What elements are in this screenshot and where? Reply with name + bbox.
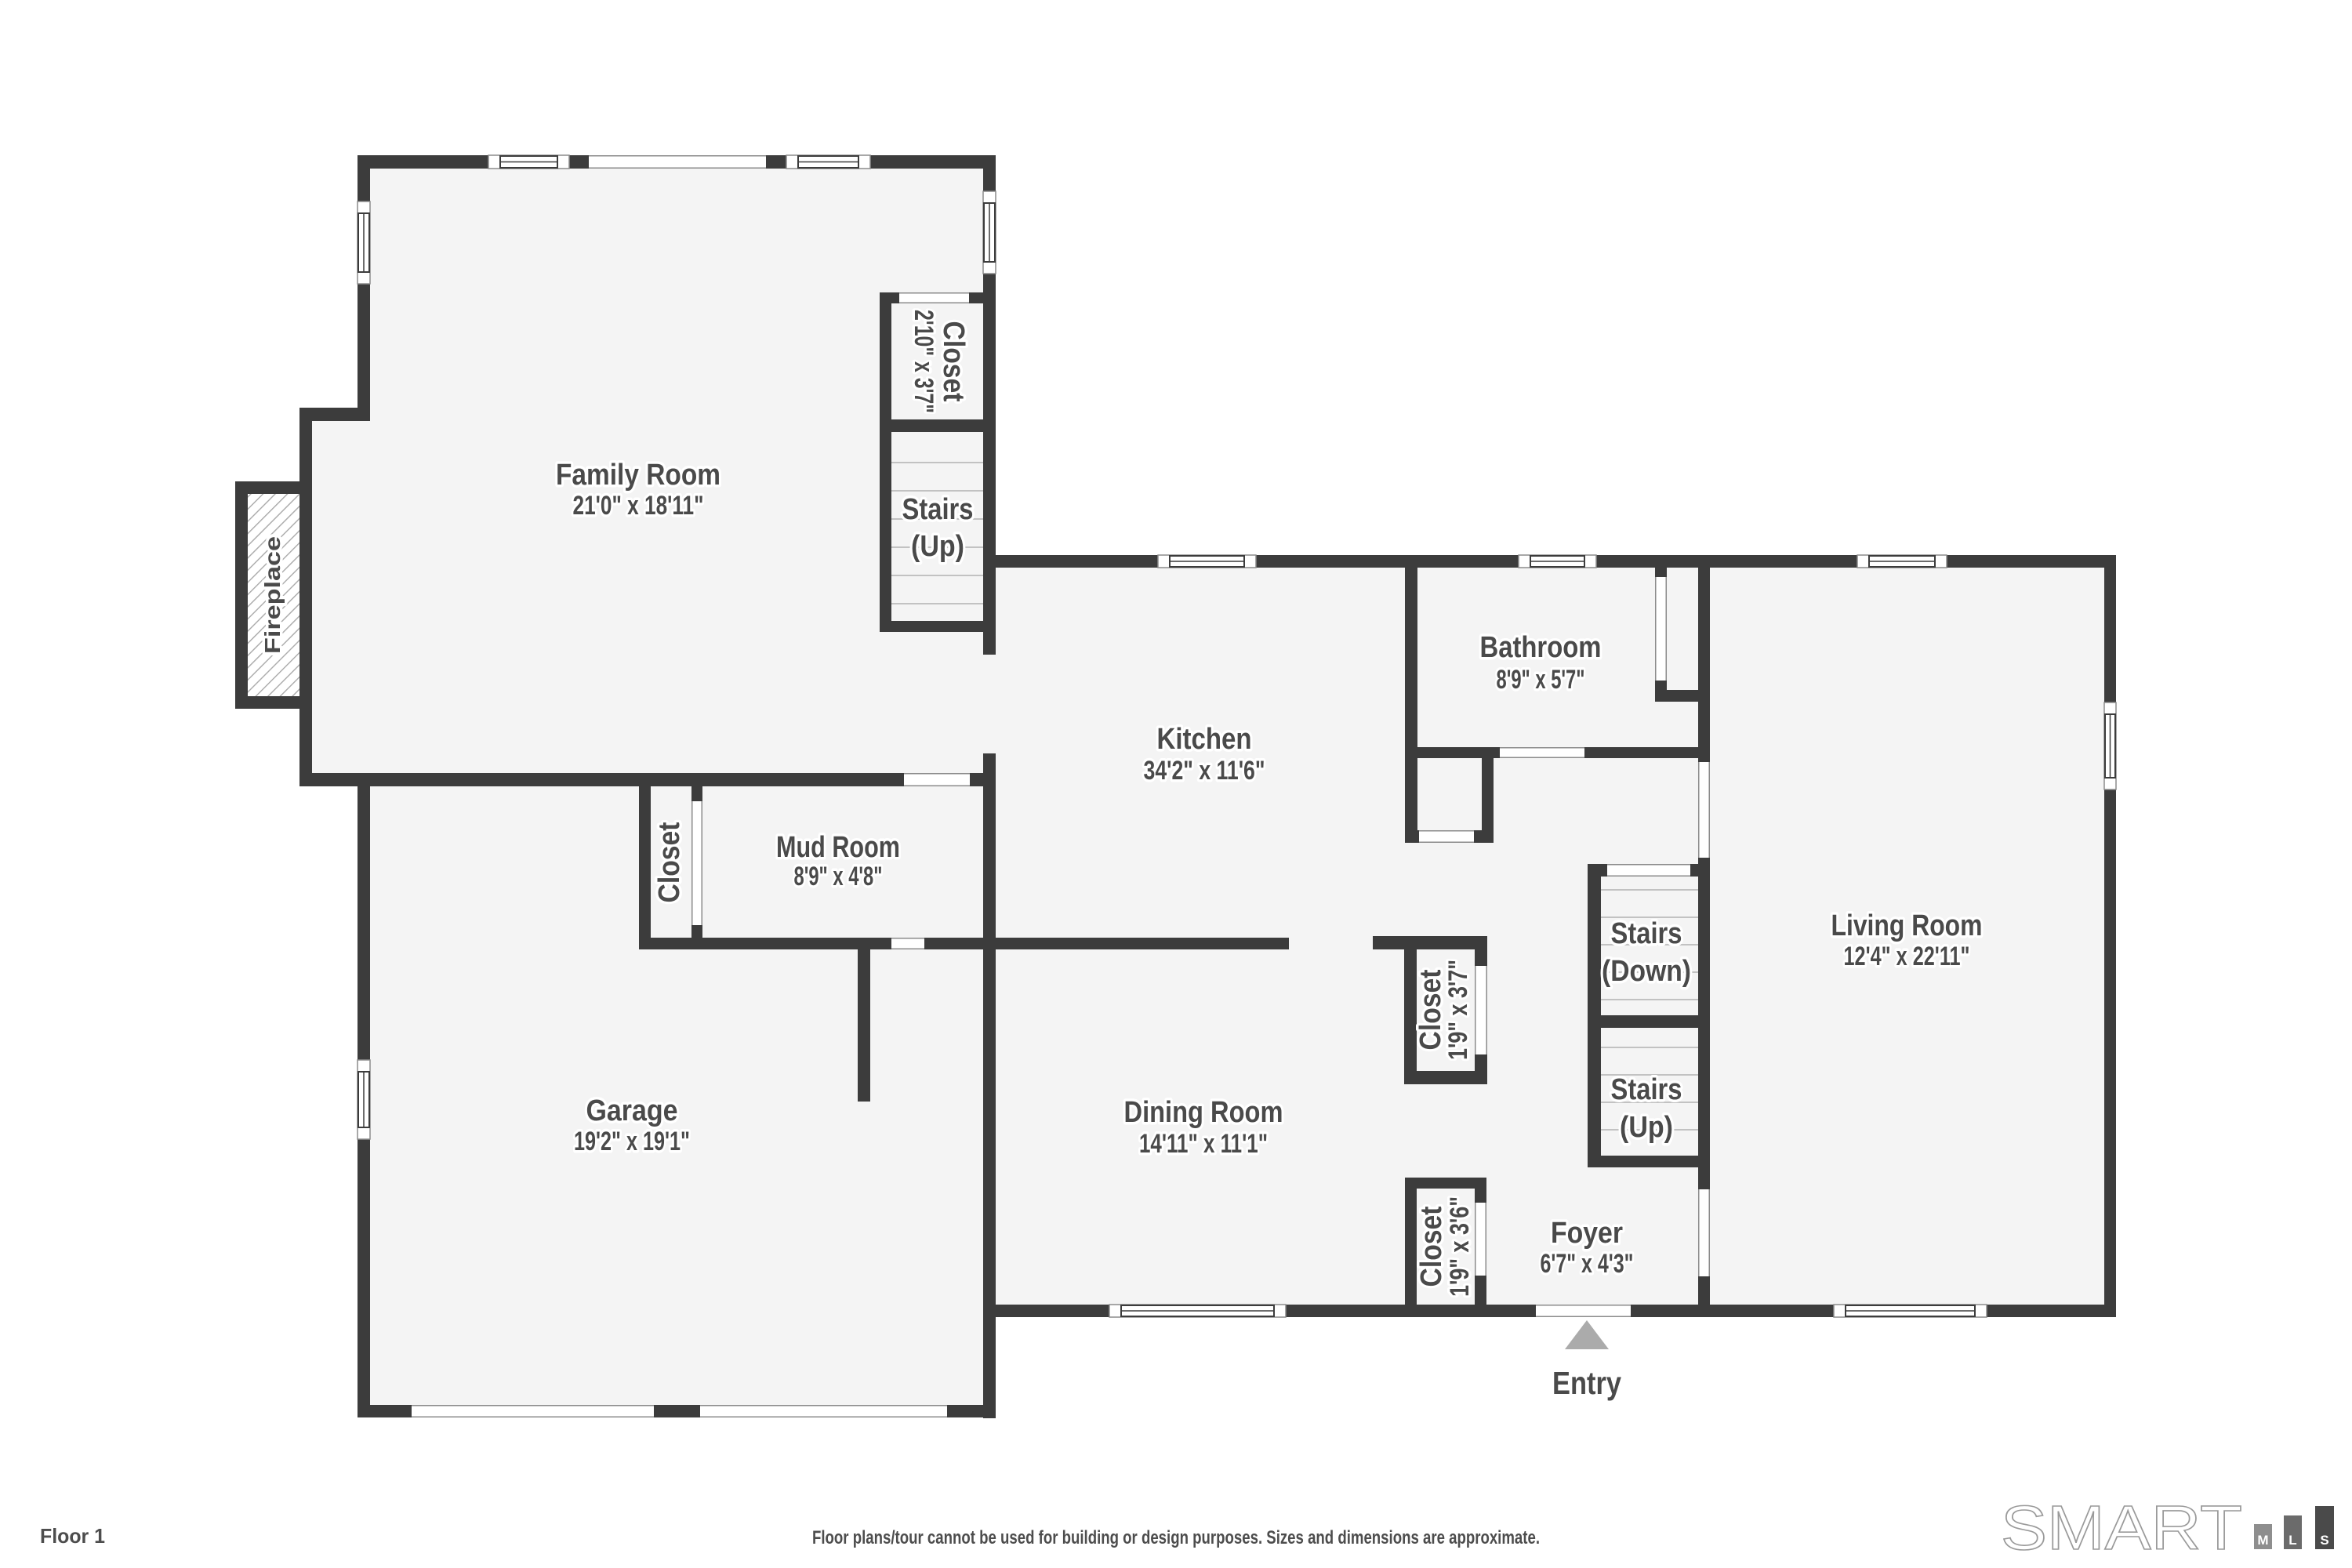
svg-text:Kitchen: Kitchen xyxy=(1157,723,1252,756)
svg-text:Closet: Closet xyxy=(1414,969,1447,1050)
svg-text:Living Room: Living Room xyxy=(1831,909,1983,942)
svg-text:Floor plans/tour cannot be use: Floor plans/tour cannot be used for buil… xyxy=(812,1527,1540,1548)
svg-text:6'7" x 4'3": 6'7" x 4'3" xyxy=(1541,1249,1634,1279)
svg-text:Closet: Closet xyxy=(937,321,970,402)
svg-text:Fireplace: Fireplace xyxy=(260,536,285,654)
svg-text:Closet: Closet xyxy=(1415,1206,1448,1287)
svg-text:Stairs: Stairs xyxy=(1611,917,1682,950)
svg-text:Closet: Closet xyxy=(653,822,686,902)
svg-text:Bathroom: Bathroom xyxy=(1480,631,1602,664)
svg-text:14'11" x 11'1": 14'11" x 11'1" xyxy=(1139,1129,1268,1159)
svg-text:(Up): (Up) xyxy=(911,530,964,563)
svg-text:2'10" x 3'7": 2'10" x 3'7" xyxy=(909,310,938,413)
svg-text:(Up): (Up) xyxy=(1620,1111,1673,1144)
svg-text:34'2" x 11'6": 34'2" x 11'6" xyxy=(1144,756,1265,786)
svg-text:1'9" x 3'6": 1'9" x 3'6" xyxy=(1445,1196,1475,1297)
svg-text:Stairs: Stairs xyxy=(1611,1073,1682,1106)
svg-text:1'9" x 3'7": 1'9" x 3'7" xyxy=(1443,960,1473,1060)
svg-text:8'9" x 4'8": 8'9" x 4'8" xyxy=(794,862,883,891)
svg-text:L: L xyxy=(2288,1533,2296,1548)
svg-text:Foyer: Foyer xyxy=(1551,1217,1623,1250)
svg-text:12'4" x 22'11": 12'4" x 22'11" xyxy=(1844,942,1970,971)
svg-text:Garage: Garage xyxy=(586,1094,678,1127)
svg-text:Entry: Entry xyxy=(1552,1365,1621,1401)
svg-text:Mud Room: Mud Room xyxy=(776,831,900,864)
svg-text:Dining Room: Dining Room xyxy=(1124,1096,1283,1129)
svg-text:SMART: SMART xyxy=(2001,1493,2242,1563)
svg-text:Floor 1: Floor 1 xyxy=(40,1524,105,1548)
svg-text:21'0" x 18'11": 21'0" x 18'11" xyxy=(573,491,704,521)
svg-text:M: M xyxy=(2257,1533,2268,1548)
svg-text:(Down): (Down) xyxy=(1602,955,1691,988)
svg-text:8'9" x 5'7": 8'9" x 5'7" xyxy=(1497,665,1585,695)
svg-text:19'2" x 19'1": 19'2" x 19'1" xyxy=(574,1127,690,1156)
svg-text:S: S xyxy=(2320,1533,2328,1548)
svg-text:Stairs: Stairs xyxy=(902,493,974,526)
svg-text:Family Room: Family Room xyxy=(556,459,720,492)
